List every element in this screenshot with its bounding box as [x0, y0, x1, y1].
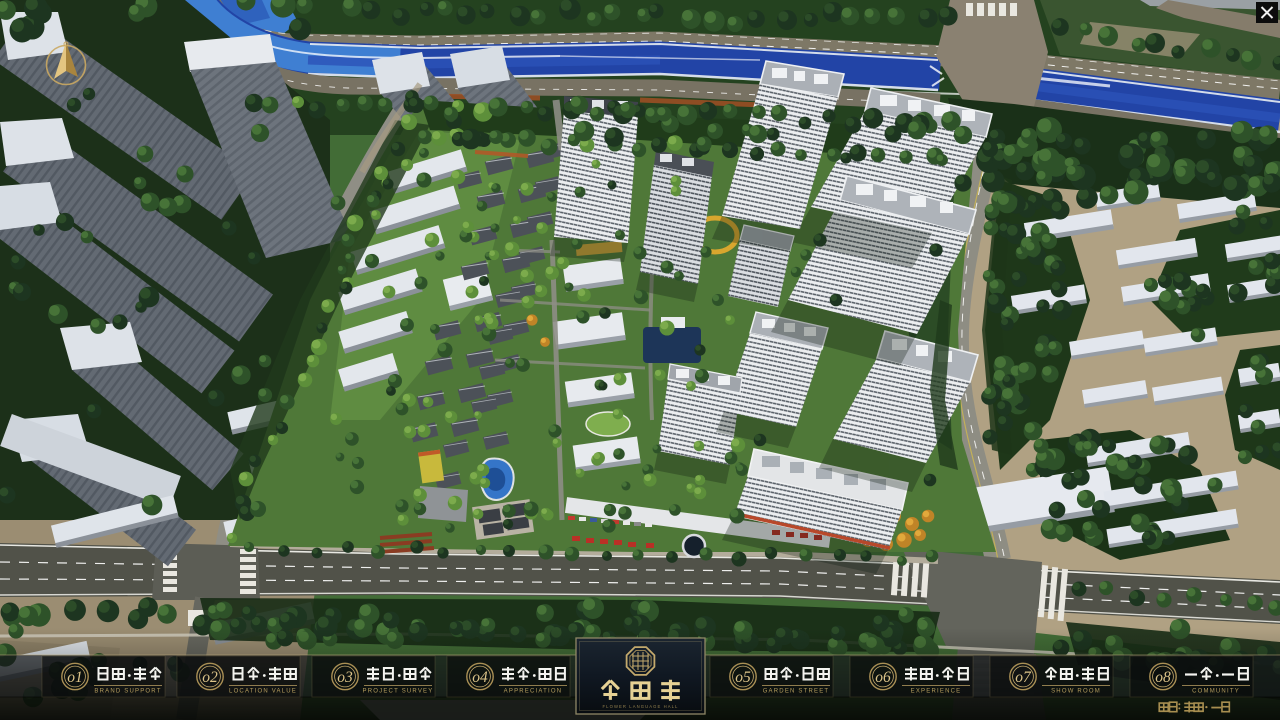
svg-text:o4: o4: [472, 669, 488, 686]
svg-text:APPRECIATION: APPRECIATION: [504, 689, 563, 695]
svg-text:EXPERIENCE: EXPERIENCE: [911, 689, 962, 695]
svg-text:o1: o1: [67, 669, 83, 686]
svg-text:COMMUNITY: COMMUNITY: [1192, 689, 1240, 695]
svg-text:o5: o5: [735, 669, 751, 686]
svg-text:o3: o3: [337, 669, 353, 686]
svg-text:FLOWER LANGUAGE HALL: FLOWER LANGUAGE HALL: [603, 704, 679, 709]
svg-text:GARDEN STREET: GARDEN STREET: [763, 689, 830, 695]
svg-text:PROJECT SURVEY: PROJECT SURVEY: [363, 689, 434, 695]
svg-text:LOCATION VALUE: LOCATION VALUE: [229, 689, 297, 695]
svg-text:o7: o7: [1015, 669, 1032, 686]
svg-text:o2: o2: [202, 669, 218, 686]
svg-text:o6: o6: [875, 669, 891, 686]
svg-text:BRAND SUPPORT: BRAND SUPPORT: [94, 689, 161, 695]
svg-text:SHOW ROOM: SHOW ROOM: [1051, 689, 1101, 695]
svg-text:o8: o8: [1155, 669, 1171, 686]
